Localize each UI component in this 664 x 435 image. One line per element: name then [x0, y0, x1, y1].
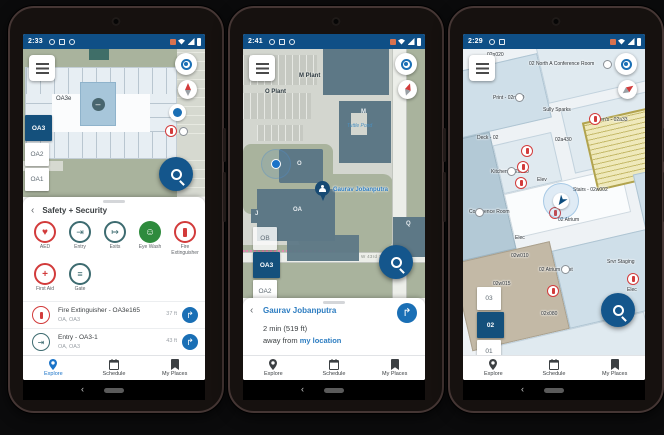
- phone-2: 2:41: [228, 6, 444, 413]
- category-first-aid[interactable]: + First Aid: [28, 263, 62, 293]
- atrium-icon[interactable]: [561, 265, 570, 274]
- notification-icon: [279, 39, 285, 45]
- category-exits[interactable]: ↦ Exits: [98, 221, 132, 251]
- person-name: Gaurav Jobanputra: [263, 306, 336, 315]
- camera-dot: [112, 17, 121, 26]
- calendar-icon: [329, 359, 339, 370]
- signal-icon: [188, 38, 195, 45]
- exits-icon: ↦: [111, 227, 119, 238]
- compass-button[interactable]: [618, 80, 637, 99]
- safety-map-icon[interactable]: [589, 113, 601, 125]
- android-back-icon[interactable]: ‹: [301, 384, 304, 394]
- gps-target-icon: [621, 59, 632, 70]
- directions-button[interactable]: ↱: [397, 303, 417, 323]
- person-pin[interactable]: [315, 181, 330, 202]
- notification-icon: [499, 39, 505, 45]
- camera-dot: [552, 17, 561, 26]
- android-home-pill[interactable]: [324, 388, 344, 393]
- power-button: [443, 128, 446, 162]
- hamburger-icon: [256, 63, 269, 74]
- explore-pin-icon: [488, 359, 498, 370]
- room-label: Deck - 02: [477, 135, 498, 141]
- search-button[interactable]: [379, 245, 413, 279]
- eta-text: 2 min (519 ft): [263, 324, 307, 333]
- alarm-icon: [489, 39, 495, 45]
- conference-icon[interactable]: [603, 60, 612, 69]
- floor-chip[interactable]: OA1: [25, 168, 49, 191]
- floor-chip[interactable]: OA2: [253, 280, 277, 298]
- parking-lot: [257, 125, 303, 141]
- drag-handle[interactable]: [323, 301, 345, 304]
- floor-chip[interactable]: OA3: [253, 252, 280, 278]
- alarm-icon: [269, 39, 275, 45]
- map-label: M: [361, 109, 366, 115]
- room-label: Elec: [627, 287, 637, 293]
- screencast-icon: [170, 39, 176, 45]
- locate-me-button[interactable]: [615, 53, 637, 75]
- result-entry[interactable]: ⇥ Entry - OA3-1 OA, OA3 43 ft ↱: [23, 328, 205, 356]
- screen-2: 2:41: [243, 34, 425, 380]
- pond-label: Tuttle Pond: [347, 123, 372, 129]
- power-button: [223, 128, 226, 162]
- safety-security-sheet: ‹ Safety + Security ♥ AED ⇥ Entry ↦ Exit…: [23, 197, 205, 356]
- gps-target-icon: [401, 59, 412, 70]
- heading-arrow-icon: [554, 194, 567, 207]
- highlighted-room[interactable]: –: [80, 82, 116, 126]
- tab-my-places[interactable]: My Places: [144, 356, 205, 380]
- category-aed[interactable]: ♥ AED: [28, 221, 62, 251]
- floor-chip[interactable]: 03: [477, 287, 501, 310]
- kitchen-icon[interactable]: [507, 167, 516, 176]
- room-label: 02w010: [511, 253, 529, 259]
- compass-needle-icon: [185, 83, 191, 96]
- wifi-icon: [618, 39, 625, 45]
- gate-icon: ≡: [77, 269, 82, 279]
- floor-chip[interactable]: OB: [253, 227, 277, 250]
- bookmark-icon: [170, 359, 180, 370]
- safety-map-icon[interactable]: [547, 285, 559, 297]
- screencast-icon: [390, 39, 396, 45]
- fire-extinguisher-map-icon[interactable]: [165, 125, 177, 137]
- fire-extinguisher-icon: [32, 306, 50, 324]
- status-bar: 2:41: [243, 34, 425, 49]
- bookmark-icon: [390, 359, 400, 370]
- screen-3: 2:29: [463, 34, 645, 380]
- notification-icon: [59, 39, 65, 45]
- room-label: Srvr Staging: [607, 259, 635, 265]
- category-fire-extinguisher[interactable]: Fire Extinguisher: [168, 221, 202, 257]
- compass-button[interactable]: [398, 80, 417, 99]
- category-entry[interactable]: ⇥ Entry: [63, 221, 97, 251]
- search-icon: [613, 305, 624, 316]
- category-gate[interactable]: ≡ Gate: [63, 263, 97, 293]
- room-label: OA3e: [56, 96, 71, 102]
- map-label: O Plant: [265, 89, 286, 95]
- fire-extinguisher-icon: [183, 228, 187, 237]
- parking-lot: [243, 93, 311, 119]
- bottom-nav: Explore Schedule My Places: [23, 355, 205, 380]
- tab-schedule[interactable]: Schedule: [84, 356, 145, 380]
- android-nav-bar: ‹: [243, 380, 425, 400]
- map-label: OA: [293, 207, 302, 213]
- no-entry-icon: –: [92, 98, 105, 111]
- alarm-icon: [49, 39, 55, 45]
- poi-icon[interactable]: [179, 127, 188, 136]
- search-icon: [391, 257, 402, 268]
- battery-icon: [637, 38, 641, 46]
- calendar-icon: [549, 359, 559, 370]
- compass-needle-icon: [403, 82, 413, 96]
- floor-selector: OA3 OA2 OA1: [25, 115, 52, 191]
- screen-1: 2:33 –: [23, 34, 205, 380]
- drag-handle[interactable]: [103, 200, 125, 203]
- map-roof: [89, 49, 109, 60]
- gps-target-icon: [181, 59, 192, 70]
- safety-map-icon[interactable]: [515, 177, 527, 189]
- map-label: Q: [406, 221, 411, 227]
- away-text: away from my location: [263, 336, 341, 345]
- camera-dot: [332, 17, 341, 26]
- safety-map-icon[interactable]: [627, 273, 639, 285]
- directions-button[interactable]: ↱: [182, 334, 198, 350]
- phone-1: 2:33 –: [8, 6, 224, 413]
- sheet-title: Safety + Security: [42, 206, 107, 215]
- locate-me-button[interactable]: [175, 53, 197, 75]
- locate-me-button[interactable]: [395, 53, 417, 75]
- entry-icon: ⇥: [32, 333, 50, 351]
- search-button[interactable]: [601, 293, 635, 327]
- room-label: 02 North A Conference Room: [529, 61, 594, 67]
- user-heading-marker: [543, 183, 579, 219]
- person-detail-sheet: ‹ Gaurav Jobanputra ↱ 2 min (519 ft) awa…: [243, 298, 425, 356]
- menu-button[interactable]: [249, 55, 275, 81]
- compass-button[interactable]: [178, 80, 197, 99]
- android-back-icon[interactable]: ‹: [521, 384, 524, 394]
- floor-chip[interactable]: 02: [477, 312, 504, 338]
- result-fire-extinguisher[interactable]: Fire Extinguisher - OA3e165 OA, OA3 37 f…: [23, 301, 205, 329]
- first-aid-icon: +: [42, 269, 48, 280]
- status-bar: 2:29: [463, 34, 645, 49]
- room-label: Elev: [537, 177, 547, 183]
- map-label: J: [255, 211, 258, 217]
- person-pin-label: Gaurav Jobanputra: [333, 187, 388, 193]
- tab-schedule[interactable]: Schedule: [304, 356, 365, 380]
- user-location-dot: [271, 159, 281, 169]
- person-icon: [319, 185, 326, 193]
- search-button[interactable]: [159, 157, 193, 191]
- back-chevron-icon[interactable]: ‹: [31, 207, 34, 215]
- tab-my-places[interactable]: My Places: [584, 356, 645, 380]
- map-canvas[interactable]: O Plant M Plant M Tuttle Pond O OA Q J W…: [243, 49, 425, 298]
- volume-button: [443, 172, 446, 222]
- explore-pin-icon: [268, 359, 278, 370]
- battery-icon: [417, 38, 421, 46]
- clock: 2:29: [468, 34, 483, 49]
- status-bar: 2:33: [23, 34, 205, 49]
- wifi-icon: [398, 39, 405, 45]
- map-label: O: [297, 161, 302, 167]
- phone-3: 2:29: [448, 6, 664, 413]
- android-back-icon[interactable]: ‹: [81, 384, 84, 394]
- building-oa-wing: [287, 235, 359, 261]
- tab-explore[interactable]: Explore: [463, 356, 524, 380]
- room-label: 02x080: [541, 311, 557, 317]
- bottom-nav: Explore Schedule My Places: [243, 355, 425, 380]
- aed-icon: ♥: [42, 227, 48, 238]
- floor-selector: 03 02 01: [477, 287, 504, 356]
- tab-explore[interactable]: Explore: [23, 356, 84, 380]
- directions-button[interactable]: ↱: [182, 307, 198, 323]
- room-label: Elec: [515, 235, 525, 241]
- signal-icon: [628, 38, 635, 45]
- wifi-icon: [178, 39, 185, 45]
- clock: 2:33: [28, 34, 43, 49]
- explore-pin-icon: [48, 359, 58, 370]
- category-eye-wash[interactable]: ☺ Eye Wash: [133, 221, 167, 251]
- bookmark-icon: [610, 359, 620, 370]
- bottom-nav: Explore Schedule My Places: [463, 355, 645, 380]
- menu-button[interactable]: [469, 55, 495, 81]
- floor-chip[interactable]: OA2: [25, 143, 49, 166]
- floor-selector: OB OA3 OA2: [253, 227, 280, 298]
- map-canvas[interactable]: – OA3e OA3 OA2 OA1: [23, 49, 205, 197]
- screencast-icon: [610, 39, 616, 45]
- entry-icon: ⇥: [76, 227, 84, 238]
- tab-schedule[interactable]: Schedule: [524, 356, 585, 380]
- clock: 2:41: [248, 34, 263, 49]
- printer-icon[interactable]: [515, 93, 524, 102]
- signal-icon: [408, 38, 415, 45]
- app-notification-icon: [289, 39, 295, 45]
- map-canvas[interactable]: 02n020 02 North A Conference Room Print …: [463, 49, 645, 356]
- room-label: Stairs - 02w002: [573, 187, 608, 193]
- menu-button[interactable]: [29, 55, 55, 81]
- hamburger-icon: [36, 63, 49, 74]
- android-nav-bar: ‹: [23, 380, 205, 400]
- room-label: Sully Sparks: [543, 107, 571, 113]
- android-home-pill[interactable]: [544, 388, 564, 393]
- map-label: M Plant: [299, 73, 320, 79]
- search-icon: [171, 169, 182, 180]
- conference-icon[interactable]: [475, 208, 484, 217]
- building: [323, 49, 389, 95]
- hamburger-icon: [476, 63, 489, 74]
- app-notification-icon: [69, 39, 75, 45]
- battery-icon: [197, 38, 201, 46]
- android-home-pill[interactable]: [104, 388, 124, 393]
- safety-map-icon[interactable]: [521, 145, 533, 157]
- tab-explore[interactable]: Explore: [243, 356, 304, 380]
- room-label: 02a430: [555, 137, 572, 143]
- floor-chip[interactable]: OA3: [25, 115, 52, 141]
- my-location-link[interactable]: my location: [300, 336, 342, 345]
- android-nav-bar: ‹: [463, 380, 645, 400]
- user-location-dot: [169, 104, 186, 121]
- volume-button: [223, 172, 226, 222]
- safety-map-icon[interactable]: [517, 161, 529, 173]
- tab-my-places[interactable]: My Places: [364, 356, 425, 380]
- compass-needle-icon: [620, 83, 634, 95]
- eye-wash-icon: ☺: [145, 227, 155, 238]
- floor-chip[interactable]: 01: [477, 340, 501, 356]
- calendar-icon: [109, 359, 119, 370]
- back-chevron-icon[interactable]: ‹: [250, 305, 253, 316]
